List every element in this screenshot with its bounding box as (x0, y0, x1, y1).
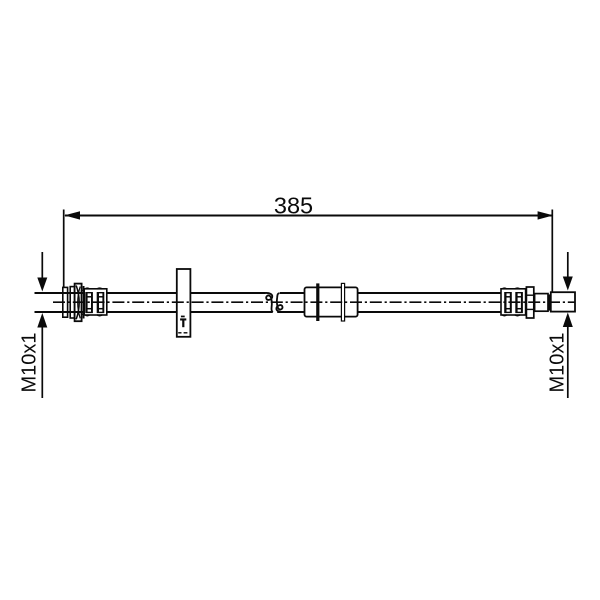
svg-text:M10x1: M10x1 (547, 332, 569, 392)
svg-text:385: 385 (274, 193, 313, 219)
svg-text:M10x1: M10x1 (18, 332, 40, 392)
